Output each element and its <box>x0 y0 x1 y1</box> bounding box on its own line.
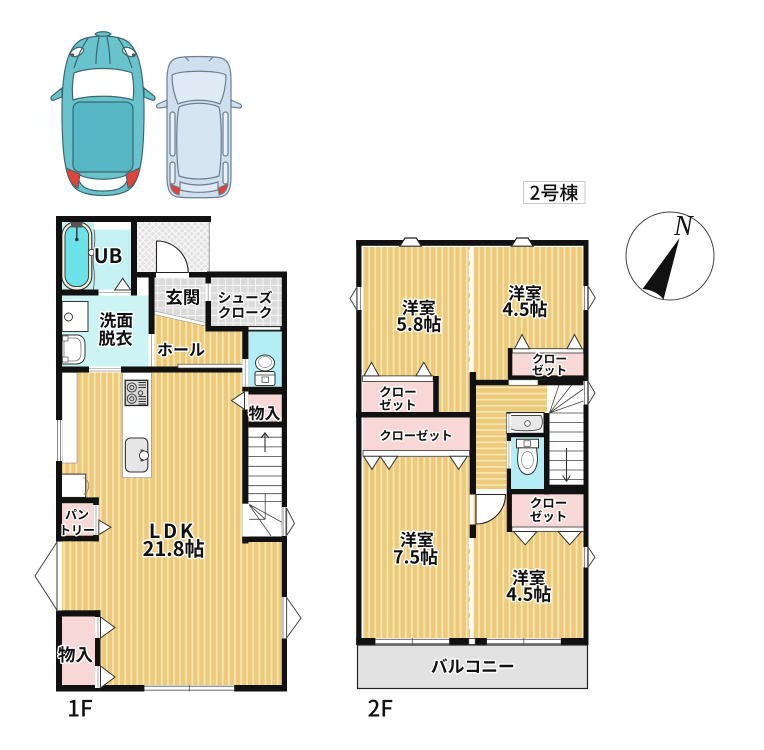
svg-text:N: N <box>673 211 694 242</box>
